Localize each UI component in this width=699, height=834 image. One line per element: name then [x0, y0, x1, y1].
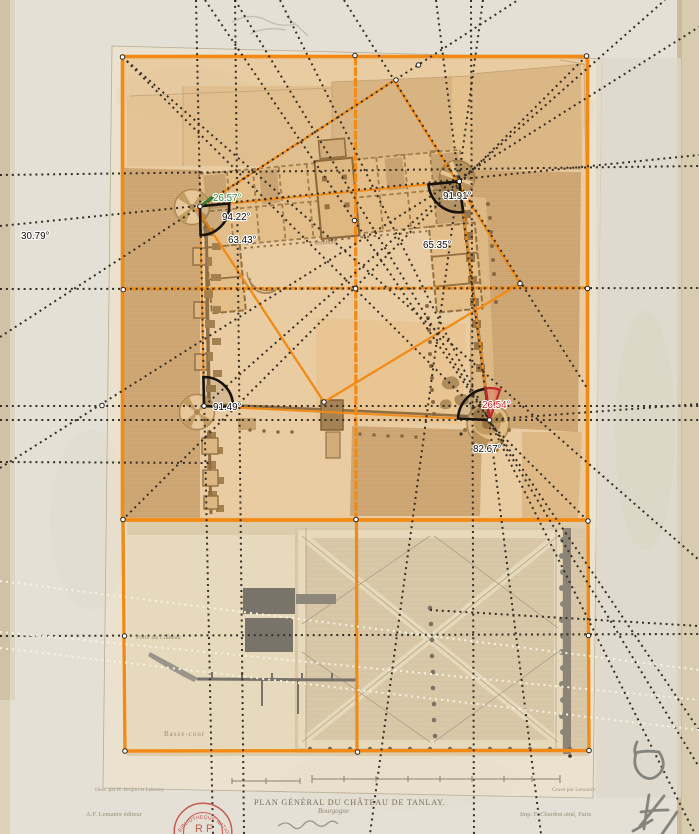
svg-text:26.54°: 26.54°	[482, 400, 511, 411]
svg-text:R F: R F	[195, 823, 213, 834]
svg-text:Bourgogne: Bourgogne	[318, 807, 349, 815]
svg-text:82.67°: 82.67°	[473, 444, 502, 455]
svg-text:30.79°: 30.79°	[21, 231, 50, 242]
svg-text:Dess. par H. Brojon et Laborey: Dess. par H. Brojon et Laborey	[95, 787, 164, 793]
svg-text:63.43°: 63.43°	[228, 235, 257, 246]
svg-text:91.91°: 91.91°	[443, 191, 472, 202]
svg-text:Porte du Château: Porte du Château	[136, 634, 182, 641]
svg-text:91.49°: 91.49°	[213, 402, 242, 413]
svg-text:PLAN GÉNÉRAL DU CHÂTEAU DE TAN: PLAN GÉNÉRAL DU CHÂTEAU DE TANLAY.	[254, 797, 446, 807]
svg-text:Imp. F. Chardon ainé, Paris: Imp. F. Chardon ainé, Paris	[520, 811, 592, 818]
svg-text:65.35°: 65.35°	[423, 240, 452, 251]
svg-text:A.F. Lemaitre éditeur: A.F. Lemaitre éditeur	[86, 811, 143, 818]
svg-text:Basse-cour: Basse-cour	[164, 730, 205, 738]
svg-text:94.22°: 94.22°	[222, 212, 251, 223]
svg-text:26.57°: 26.57°	[213, 193, 242, 204]
svg-text:Gravé par Lemaitre: Gravé par Lemaitre	[552, 787, 596, 793]
